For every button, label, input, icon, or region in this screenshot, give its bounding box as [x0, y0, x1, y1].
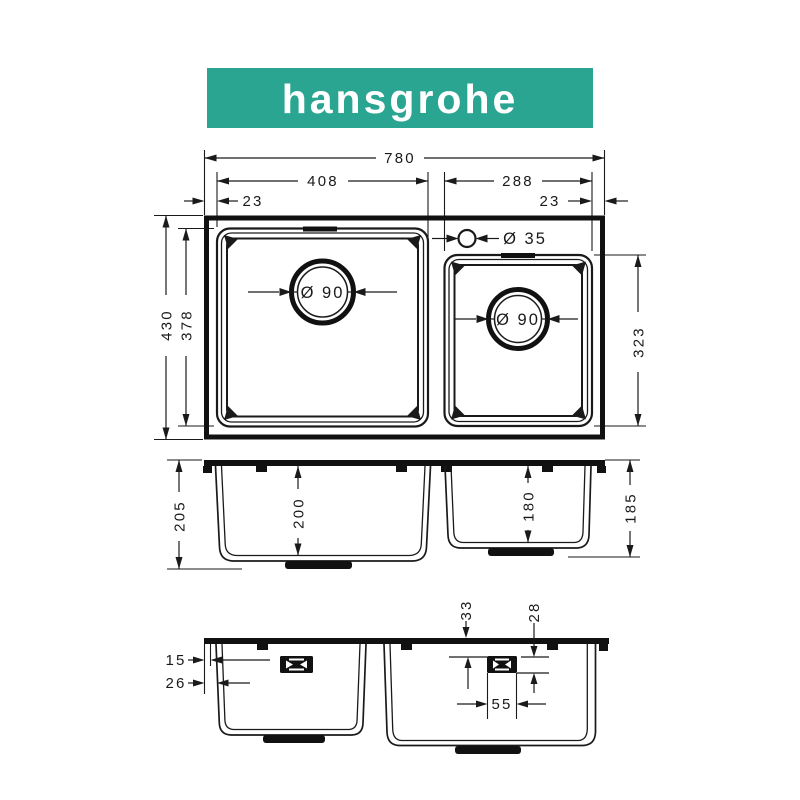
dim-left-bowl-width: 408	[217, 173, 428, 190]
dim-378: 378	[179, 309, 196, 341]
spec-sheet: hansgrohe 780	[0, 0, 800, 800]
mounting-tab	[257, 644, 268, 650]
tap-hole	[459, 230, 476, 247]
corner-mark	[572, 262, 586, 276]
mounting-tab	[542, 466, 553, 472]
left-bowl-section	[216, 466, 431, 569]
dim-right-bowl-depth: 180	[521, 466, 538, 543]
dim-55: 55	[491, 696, 512, 713]
dim-430: 430	[159, 309, 176, 341]
clip-reference-line	[449, 657, 487, 689]
brand-logo: hansgrohe	[207, 68, 593, 128]
dim-26: 26	[165, 675, 186, 692]
dim-lip-26: 26	[165, 675, 250, 692]
dim-323: 323	[631, 326, 648, 358]
mounting-tab	[547, 644, 558, 650]
mounting-clip-right	[487, 656, 517, 673]
dim-180: 180	[521, 490, 538, 522]
dim-200: 200	[291, 497, 308, 529]
dim-rim-right: 23	[539, 193, 628, 210]
dim-outer-depth-left: 205	[167, 460, 242, 569]
dim-23-left: 23	[242, 193, 263, 210]
dim-right-bowl-depth: 323	[631, 255, 648, 426]
rim-end-cap	[203, 466, 212, 473]
dim-inner-depth: 378	[179, 229, 196, 427]
mounting-tab	[401, 644, 412, 650]
right-bowl	[445, 253, 593, 426]
dim-outer-depth-right: 185	[568, 460, 640, 557]
mounting-tab	[396, 466, 407, 472]
mounting-tab	[256, 466, 267, 472]
dim-total-depth: 430	[159, 216, 176, 440]
side-section-view: 15 26 33 28	[165, 599, 609, 754]
corner-mark	[451, 406, 465, 420]
right-drain-callout: Ø 90	[455, 290, 578, 349]
drain-diameter-label: Ø 90	[301, 284, 345, 302]
rim-end-cap	[597, 466, 606, 473]
right-bowl-section	[445, 466, 591, 556]
dim-total-width: 780	[205, 150, 605, 167]
drain-diameter-label: Ø 90	[496, 311, 540, 329]
left-drain-callout: Ø 90	[248, 261, 397, 323]
dim-23-right: 23	[539, 193, 560, 210]
dim-185: 185	[623, 492, 640, 524]
sink-dimension-drawing: hansgrohe 780	[0, 0, 800, 800]
dim-15: 15	[165, 652, 186, 669]
dim-rim-left: 23	[184, 193, 264, 210]
drain-boss	[263, 735, 325, 743]
dim-left-bowl-depth: 200	[291, 466, 308, 556]
dim-clip-drop: 28	[517, 601, 549, 693]
dim-top-offset: 33	[458, 599, 475, 638]
dim-780: 780	[384, 150, 416, 167]
rim-end-cap	[599, 644, 608, 651]
dim-33: 33	[458, 599, 475, 620]
front-section-view: 205 200 180 185	[167, 460, 640, 569]
dim-288: 288	[502, 173, 534, 190]
corner-mark	[451, 262, 465, 276]
tap-hole-label: Ø 35	[503, 230, 547, 248]
drain-boss	[488, 548, 554, 556]
drain-boss	[455, 746, 521, 754]
dim-408: 408	[307, 173, 339, 190]
left-bowl	[217, 227, 428, 427]
dim-28: 28	[526, 601, 543, 622]
tap-hole-callout: Ø 35	[432, 230, 547, 248]
top-view: 780 408 288 23 23	[154, 150, 648, 440]
overflow-slot	[501, 253, 535, 258]
dim-right-bowl-width: 288	[445, 173, 593, 190]
mounting-tab	[441, 466, 452, 472]
logo-wordmark: hansgrohe	[282, 76, 519, 122]
mounting-clip-left	[280, 656, 313, 673]
corner-mark	[572, 406, 586, 420]
dim-205: 205	[172, 500, 189, 532]
drain-boss	[285, 561, 352, 569]
overflow-slot	[303, 227, 337, 232]
sink-outer-rim	[207, 218, 603, 437]
